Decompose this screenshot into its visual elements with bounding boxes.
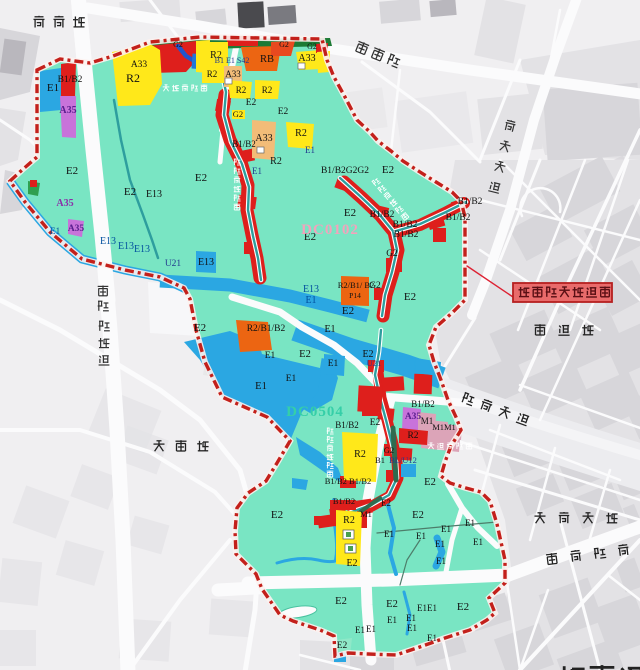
svg-text:B1/B2: B1/B2 [370, 210, 395, 220]
svg-text:B1/B2: B1/B2 [446, 213, 471, 223]
svg-text:R2: R2 [354, 449, 366, 460]
svg-text:A35: A35 [59, 105, 76, 116]
svg-text:G2: G2 [233, 109, 243, 119]
svg-text:B1/B2G2G2: B1/B2G2G2 [321, 166, 369, 176]
svg-text:E2: E2 [412, 510, 424, 521]
svg-text:E2: E2 [404, 291, 416, 303]
svg-text:R2: R2 [126, 71, 140, 85]
svg-text:DC0102: DC0102 [301, 222, 359, 238]
svg-text:A33: A33 [131, 60, 148, 70]
svg-text:A33: A33 [255, 133, 272, 144]
svg-text:E1: E1 [406, 613, 416, 623]
svg-text:B1/B2: B1/B2 [458, 197, 483, 207]
svg-text:U21: U21 [165, 259, 182, 269]
svg-text:M1M1: M1M1 [432, 422, 456, 432]
svg-text:E1: E1 [305, 295, 316, 306]
svg-text:E1: E1 [473, 537, 483, 547]
svg-text:B1/B2: B1/B2 [58, 75, 83, 85]
svg-text:E2: E2 [335, 596, 347, 607]
svg-text:B1/B2: B1/B2 [394, 230, 419, 240]
svg-text:E13: E13 [134, 244, 150, 255]
svg-text:A35: A35 [56, 198, 73, 209]
svg-text:E2: E2 [124, 186, 136, 198]
svg-text:E2: E2 [337, 641, 348, 651]
svg-text:E1: E1 [50, 227, 61, 237]
svg-text:R2/B1/B2: R2/B1/B2 [247, 324, 286, 334]
svg-text:E2: E2 [342, 305, 354, 317]
svg-text:A33: A33 [225, 69, 241, 79]
svg-text:E2: E2 [278, 107, 289, 117]
svg-text:G2: G2 [307, 42, 317, 51]
svg-text:M1: M1 [360, 509, 372, 519]
svg-text:A35: A35 [405, 412, 422, 422]
svg-text:E1: E1 [407, 623, 417, 633]
svg-text:E1: E1 [265, 351, 276, 361]
svg-text:E1: E1 [324, 324, 335, 335]
svg-text:E1: E1 [417, 603, 427, 613]
svg-text:E2: E2 [246, 98, 257, 108]
svg-text:E1: E1 [435, 539, 445, 549]
svg-text:E1: E1 [427, 603, 437, 613]
svg-text:B1/B2: B1/B2 [232, 139, 256, 149]
svg-text:E2: E2 [195, 172, 207, 184]
svg-text:R2: R2 [207, 69, 218, 79]
svg-text:R2: R2 [295, 128, 307, 139]
svg-text:R2: R2 [236, 85, 247, 95]
svg-text:G2: G2 [173, 40, 183, 49]
svg-text:U21: U21 [367, 358, 382, 368]
svg-text:E1: E1 [465, 518, 475, 528]
svg-text:A33: A33 [298, 53, 315, 64]
svg-text:R2: R2 [270, 156, 282, 167]
svg-text:P14: P14 [349, 291, 361, 300]
svg-text:E1: E1 [328, 359, 339, 369]
svg-text:E2: E2 [382, 164, 394, 176]
svg-text:E1: E1 [436, 556, 446, 566]
svg-text:E1: E1 [252, 166, 262, 176]
svg-text:E1: E1 [416, 531, 426, 541]
svg-text:E2: E2 [66, 165, 78, 177]
svg-text:E2: E2 [346, 558, 357, 569]
svg-text:G2: G2 [384, 445, 394, 455]
svg-text:B1: B1 [375, 455, 385, 465]
svg-text:E1: E1 [366, 624, 376, 634]
svg-text:E13: E13 [146, 189, 162, 200]
svg-text:E2: E2 [370, 418, 381, 428]
svg-text:E13: E13 [303, 284, 319, 295]
svg-text:B1/B2: B1/B2 [335, 420, 359, 430]
svg-text:E2: E2 [344, 207, 356, 219]
svg-text:E1: E1 [355, 625, 365, 635]
svg-text:R2/B1/ B2: R2/B1/ B2 [338, 280, 375, 290]
svg-text:RB: RB [260, 54, 274, 65]
svg-text:B1/B2: B1/B2 [393, 220, 418, 230]
svg-text:G2: G2 [279, 40, 289, 49]
svg-text:A35: A35 [68, 224, 85, 234]
svg-text:B1/B2: B1/B2 [333, 496, 355, 506]
svg-text:E13: E13 [118, 241, 134, 252]
svg-text:R2: R2 [343, 515, 355, 526]
svg-text:E2: E2 [386, 599, 398, 610]
svg-text:G2: G2 [386, 249, 398, 259]
svg-text:B1 E1 S42: B1 E1 S42 [215, 56, 250, 65]
svg-text:E1: E1 [384, 529, 394, 539]
svg-text:E2: E2 [271, 509, 283, 521]
svg-text:E1: E1 [427, 633, 437, 643]
svg-text:E2: E2 [299, 349, 311, 360]
svg-text:B1/B2: B1/B2 [411, 399, 435, 409]
svg-text:E1: E1 [305, 145, 315, 155]
svg-text:E2: E2 [194, 322, 206, 334]
svg-text:R2: R2 [262, 85, 273, 95]
svg-text:DC0504: DC0504 [286, 404, 344, 420]
svg-text:E1: E1 [441, 524, 451, 534]
svg-text:E2: E2 [457, 601, 469, 613]
svg-text:E1: E1 [387, 615, 397, 625]
svg-text:E1: E1 [255, 381, 267, 392]
svg-text:B1/B2 B1/B2: B1/B2 B1/B2 [325, 476, 372, 486]
svg-text:E2: E2 [424, 477, 436, 488]
svg-text:E1: E1 [286, 374, 297, 384]
svg-text:BL/U12: BL/U12 [389, 455, 417, 465]
svg-text:E13: E13 [198, 257, 214, 268]
svg-text:E2: E2 [381, 498, 391, 508]
svg-text:E13: E13 [100, 236, 116, 247]
svg-text:R2: R2 [407, 431, 418, 441]
